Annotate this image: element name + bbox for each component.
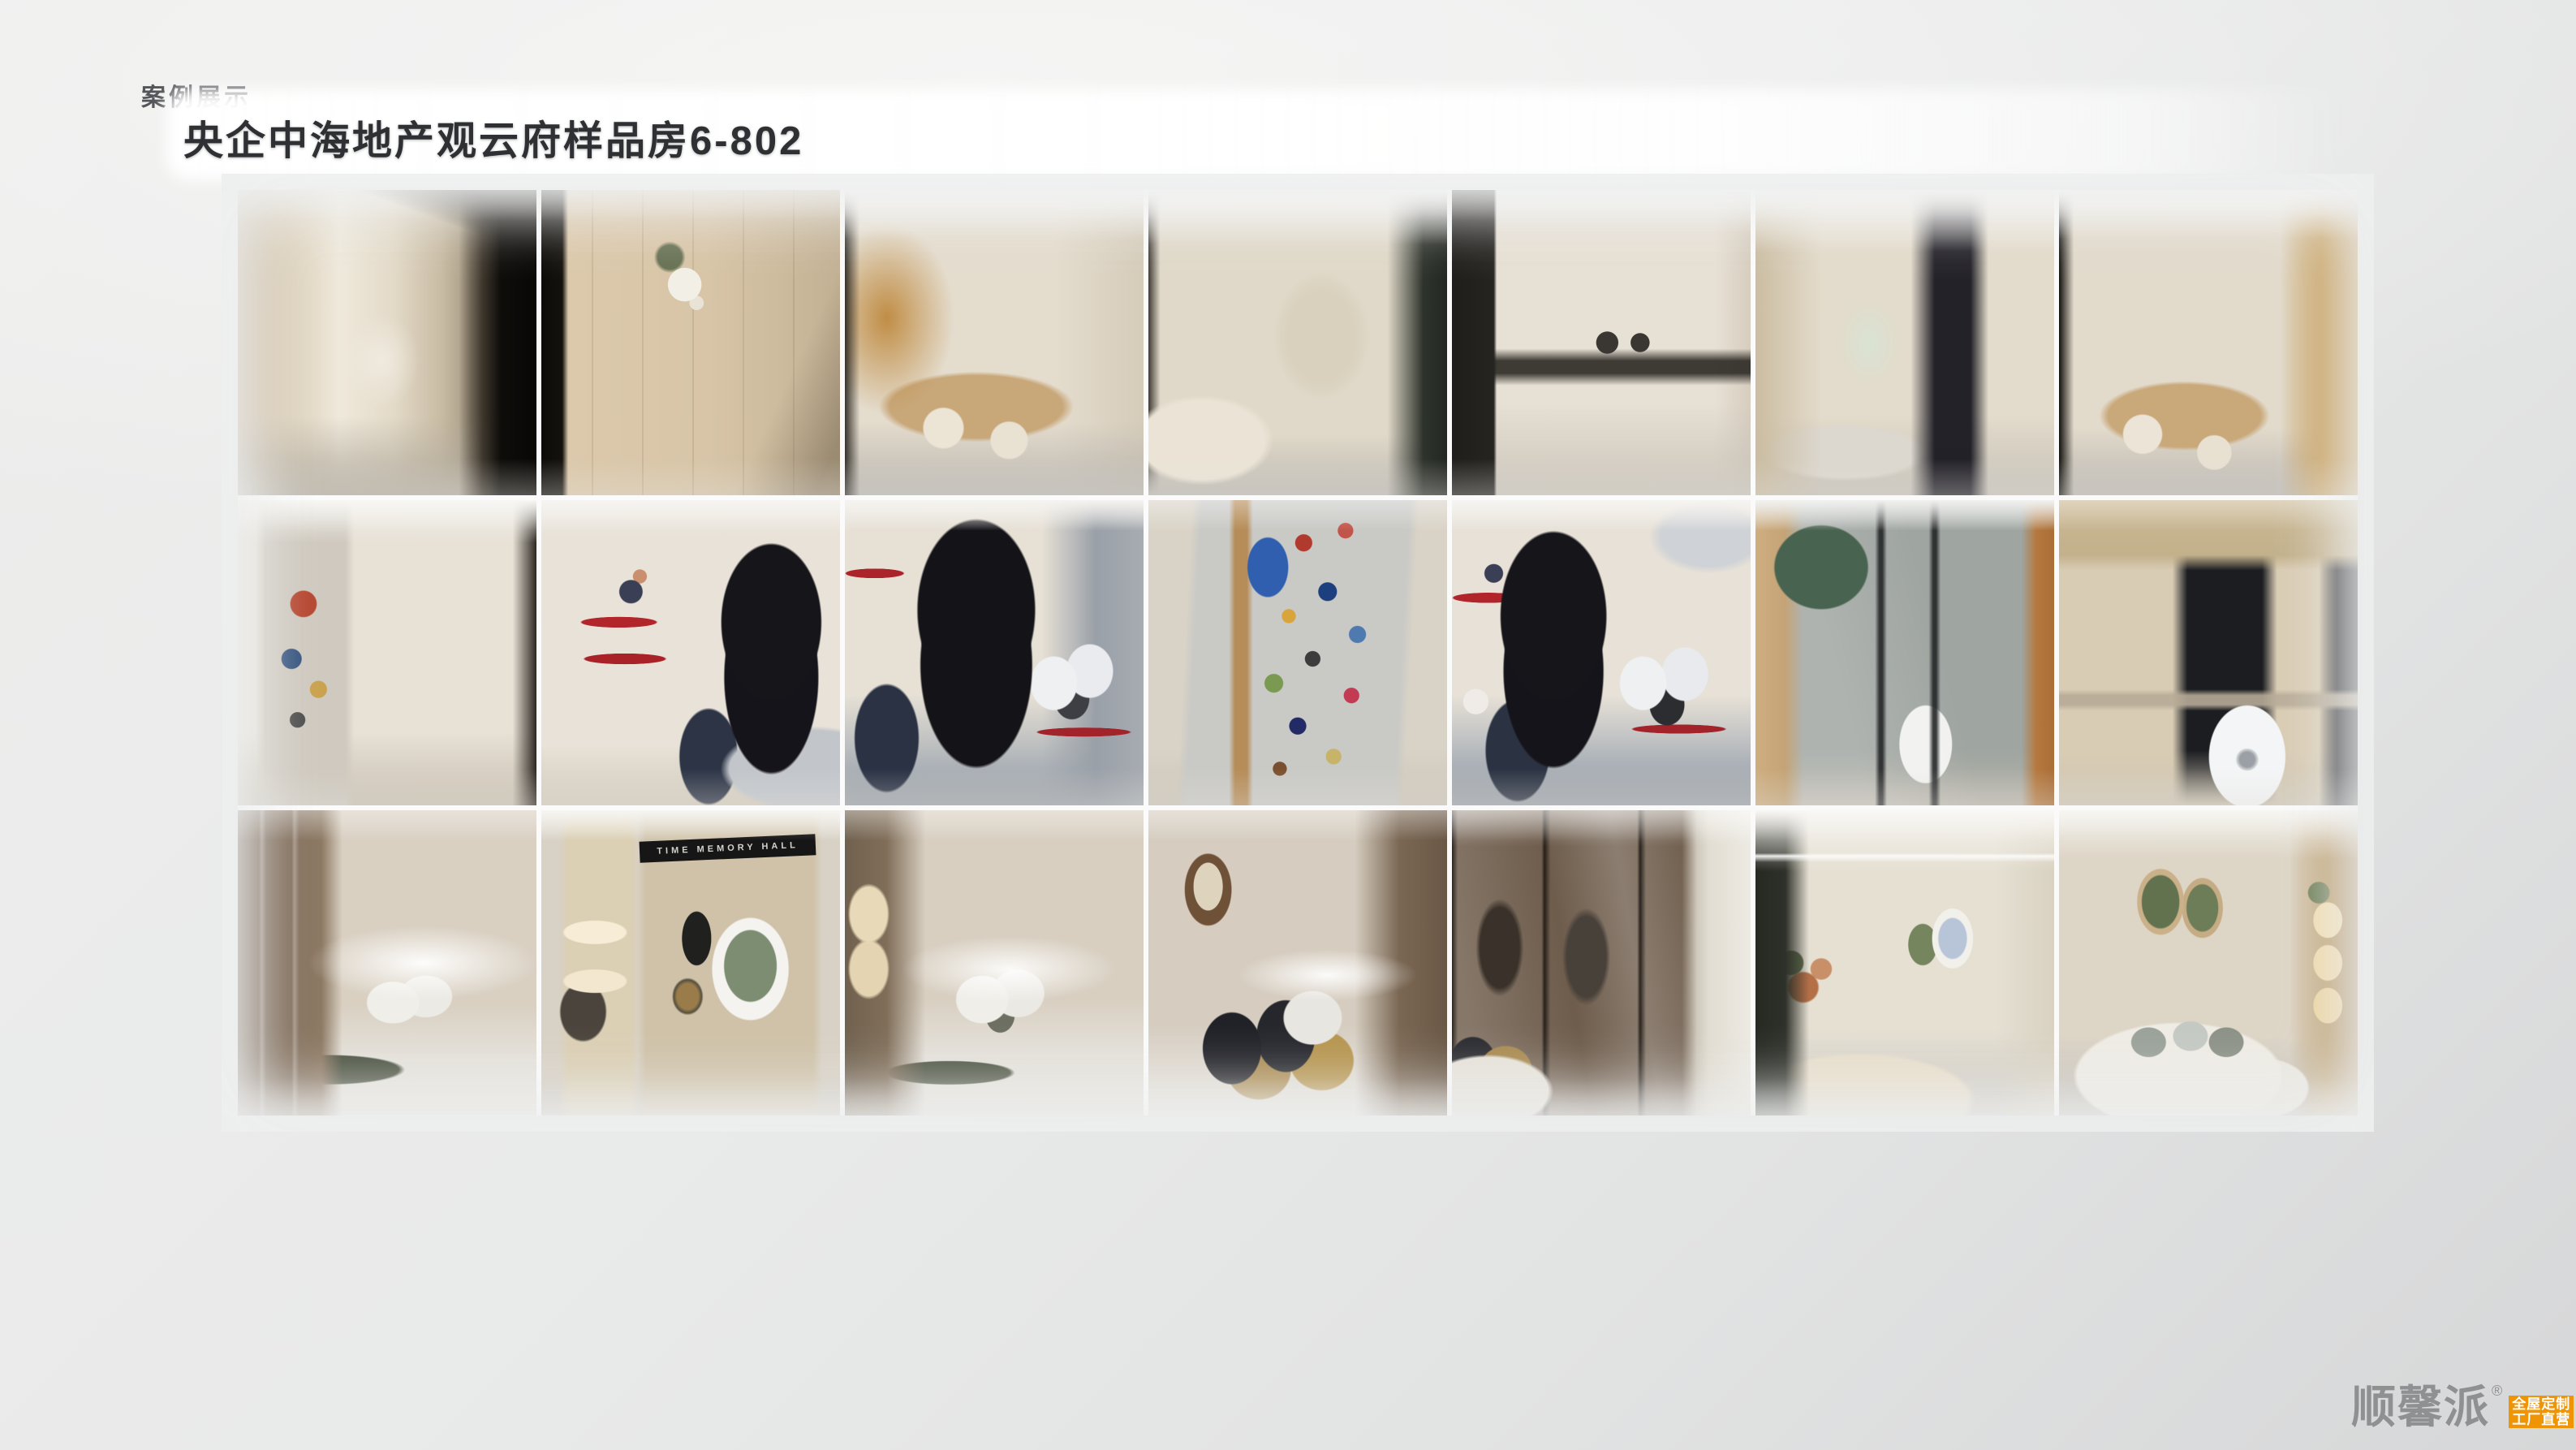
brand-footer: 顺馨派 ® 全屋定制 工厂直营: [2351, 1385, 2574, 1430]
photo-bathroom: [1755, 500, 2054, 805]
photo-balcony-laundry: [2059, 500, 2358, 805]
photo-corridor-artwork: [238, 500, 536, 805]
photo-kids-room-bed: [845, 500, 1144, 805]
photo-wardrobe-glass-doors: [1452, 810, 1751, 1116]
photo-kids-room-red-shelves: [541, 500, 840, 805]
case-display-slide: 案例展示 央企中海地产观云府样品房6-802 TIME MEMORY HALL …: [0, 0, 2576, 1450]
photo-entry-hallway: [238, 190, 536, 495]
photo-dining-table: [2059, 190, 2358, 495]
photo-memory-wall: TIME MEMORY HALL: [541, 810, 840, 1116]
photo-master-bedroom-bed: [845, 810, 1144, 1116]
photo-living-room-sofa: [2059, 810, 2358, 1116]
photo-photo-collage-wall: [1148, 500, 1447, 805]
brand-logo-text: 顺馨派: [2351, 1385, 2490, 1430]
photo-living-dining-area: [1755, 810, 2054, 1116]
photo-hallway-to-dining: [1755, 190, 2054, 495]
photo-entry-door-panel: [541, 190, 840, 495]
photo-bed-pillows: [1148, 810, 1447, 1116]
badge-line-1: 全屋定制: [2512, 1396, 2570, 1412]
photo-master-bedroom-wardrobe: [238, 810, 536, 1116]
registered-trademark-icon: ®: [2492, 1383, 2502, 1398]
badge-line-2: 工厂直营: [2512, 1412, 2570, 1427]
photo-dining-shelves: [845, 190, 1144, 495]
brand-badge: 全屋定制 工厂直营: [2509, 1396, 2574, 1428]
photo-kids-room-mirror: [1452, 500, 1751, 805]
memory-wall-sign: TIME MEMORY HALL: [640, 834, 816, 863]
photo-living-room: [1148, 190, 1447, 495]
page-title: 央企中海地产观云府样品房6-802: [183, 109, 803, 166]
photo-kitchen: [1452, 190, 1751, 495]
photo-gallery-grid: TIME MEMORY HALL: [238, 190, 2358, 1116]
